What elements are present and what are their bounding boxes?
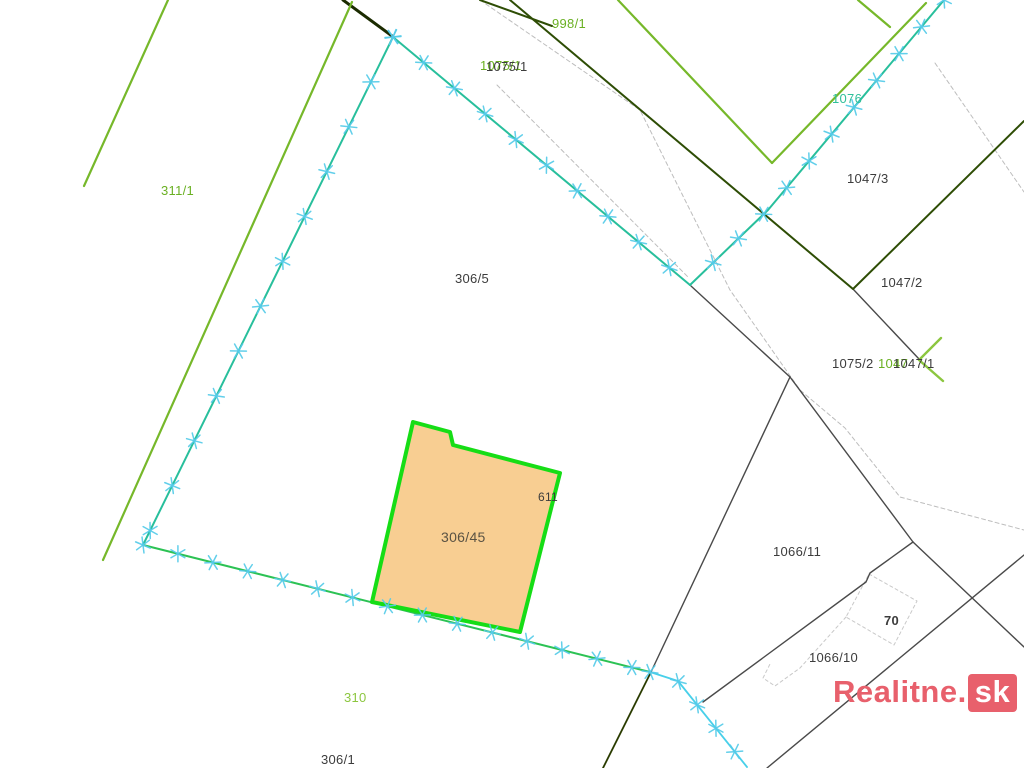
parcel-label-306-1: 306/1 [321,752,355,767]
parcel-label-998-1: 998/1 [552,16,586,31]
black-southeast-1 [913,542,1024,647]
boundary-cyan-chain [650,672,747,767]
survey-cross [707,257,719,268]
parcel-label-1075-2: 1075/2 [832,356,874,371]
black-junction-east [691,286,790,377]
parcel-label-1066-10: 1066/10 [809,650,858,665]
survey-cross [321,166,332,178]
parcel-label-306-5: 306/5 [455,271,489,286]
boundary-306-5-main [393,37,690,285]
road-dash-topright [935,63,1024,192]
cadastral-map: 998/11075/11075/110761047/3311/1306/5104… [0,0,1024,768]
parcel-label-310: 310 [344,690,367,705]
lightgreen-ne-a [618,0,772,163]
darkgreen-main [510,0,1024,289]
boundary-1076-chain [690,0,944,285]
parcel-label-311-1: 311/1 [161,183,194,198]
lightgreen-long-west [103,2,352,560]
parcel-label-1076: 1076 [832,91,862,106]
black-1047-link [853,289,919,359]
parcel-label-1047-3: 1047/3 [847,171,889,186]
parcel-label-70: 70 [884,613,899,628]
watermark-text: Realitne. [833,674,967,709]
building-70-outline [846,574,917,645]
watermark-badge: sk [968,674,1017,712]
lightgreen-ne-b [772,3,926,163]
lightgreen-ne-c [858,0,890,27]
parcel-label-1075-1: 1075/1 [486,59,528,74]
lightgreen-left-short [84,0,168,186]
parcel-label-1066-11: 1066/11 [773,544,821,559]
black-1066-11-upper [790,377,913,542]
highlight-parcel-306-45 [372,422,560,632]
realitne-watermark: Realitne.sk [833,674,1017,712]
survey-cross [943,0,944,8]
parcel-label-1047-2: 1047/2 [881,275,923,290]
survey-cross [189,435,200,446]
parcel-label-306-45: 306/45 [441,529,486,545]
parcel-label-611: 611 [538,490,558,504]
road-dash-right [480,0,1024,530]
boundary-306-5-left [143,37,393,545]
road-dash-left [497,85,688,277]
cadastral-map-viewport: 998/11075/11075/110761047/3311/1306/5104… [0,0,1024,768]
black-to-south-junction [651,377,790,672]
parcel-label-1047-1: 1047/1 [893,356,935,371]
survey-cross [312,583,324,594]
darkolive-south [603,672,651,768]
